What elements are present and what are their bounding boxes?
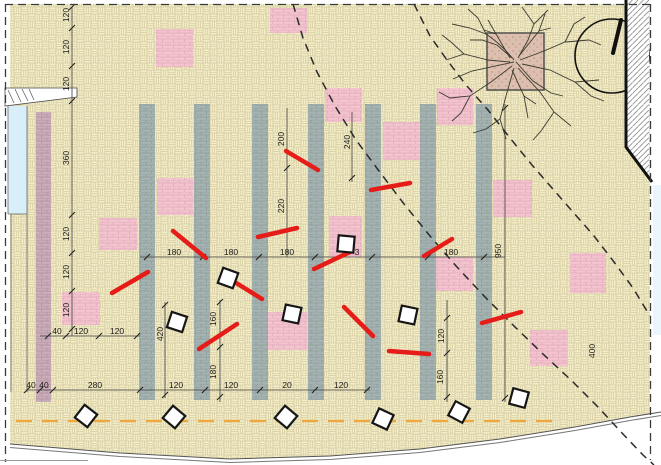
right-margin-tint: [653, 185, 661, 335]
red-mark: [389, 351, 429, 354]
paving-band: [476, 104, 492, 400]
paving-band: [365, 104, 381, 400]
paving-band: [308, 104, 324, 400]
fixture-marker: [509, 388, 529, 408]
paving-band: [252, 104, 268, 400]
planting-bed: [383, 122, 420, 160]
site-plan-drawing: 4012012018018018031804040280120120201201…: [0, 0, 661, 465]
planting-bed: [325, 88, 362, 122]
planting-bed: [157, 178, 193, 215]
paving-band: [139, 104, 155, 400]
planting-bed: [99, 218, 137, 250]
water-margin: [8, 106, 27, 214]
fixture-marker: [283, 305, 302, 324]
planting-bed: [270, 8, 307, 33]
planting-bed: [156, 29, 193, 67]
planting-bed: [530, 330, 568, 366]
plan-canvas: [0, 0, 661, 465]
offsite-hatched-area: [626, 0, 652, 182]
planting-bed: [62, 292, 100, 325]
mauve-paving-strip: [36, 112, 51, 402]
planting-bed: [570, 253, 606, 293]
fixture-marker: [167, 312, 187, 332]
fixture-marker: [399, 306, 418, 325]
planting-bed: [493, 180, 532, 217]
fixture-marker: [337, 235, 354, 252]
planting-bed: [435, 257, 473, 291]
